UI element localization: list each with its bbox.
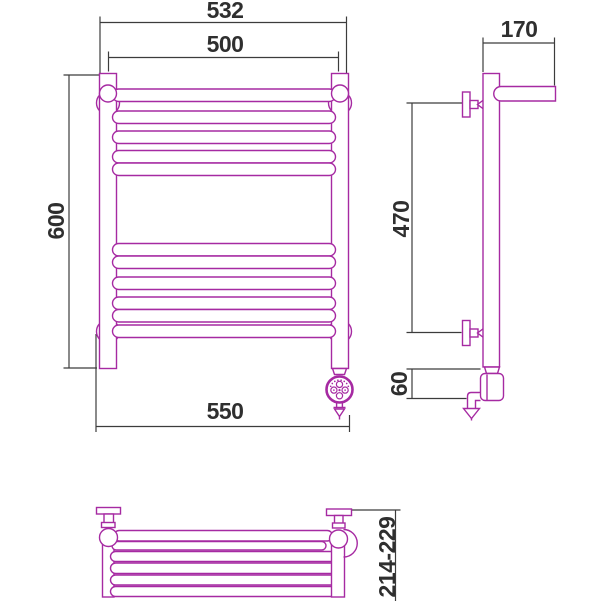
dimension-170-label: 170: [489, 17, 549, 41]
rung: [113, 297, 336, 310]
side-wall-bracket-bottom: [463, 321, 484, 346]
rung: [113, 256, 336, 269]
plan-left-valve: [97, 508, 121, 547]
power-plug-arrow: [334, 402, 346, 419]
dimension-470-lines: [407, 103, 463, 333]
dimension-532-label: 532: [195, 0, 255, 22]
dimension-500-label: 500: [195, 32, 255, 56]
rung: [113, 111, 336, 124]
rungs: [113, 89, 336, 338]
rung: [113, 163, 336, 176]
rung: [113, 131, 336, 144]
side-riser-pipe: [483, 74, 500, 368]
rung: [113, 89, 336, 102]
dimension-470-label: 470: [389, 189, 413, 249]
dimension-214-229-label: 214-229: [375, 507, 399, 601]
rung: [113, 277, 336, 290]
side-top-arm: [494, 87, 556, 102]
plan-bar: [112, 542, 326, 551]
right-mount-knob: [332, 85, 349, 102]
plan-right-valve: [327, 509, 352, 548]
technical-drawing-canvas: 532 500 600 550 170 470 60 214-229: [0, 0, 600, 601]
heating-element-knob: [327, 369, 353, 420]
drawing-svg: [0, 0, 600, 601]
rung: [113, 151, 336, 164]
rung: [113, 244, 336, 257]
top-view: [97, 508, 358, 598]
plan-bar: [114, 531, 333, 542]
plan-bar: [111, 575, 340, 585]
dimension-60-label: 60: [387, 354, 411, 414]
side-heating-element: [464, 367, 504, 421]
dimension-550-label: 550: [195, 399, 255, 423]
rung: [113, 310, 336, 323]
plan-bar: [111, 563, 340, 574]
plan-bar: [111, 552, 340, 562]
rung: [113, 325, 336, 338]
cable-arrow: [464, 409, 480, 419]
side-wall-bracket-top: [463, 92, 484, 117]
plan-bars: [111, 531, 340, 597]
plan-bar: [111, 587, 340, 597]
left-mount-knob: [100, 85, 117, 102]
dimension-600-label: 600: [44, 191, 68, 251]
front-view: [97, 74, 353, 420]
